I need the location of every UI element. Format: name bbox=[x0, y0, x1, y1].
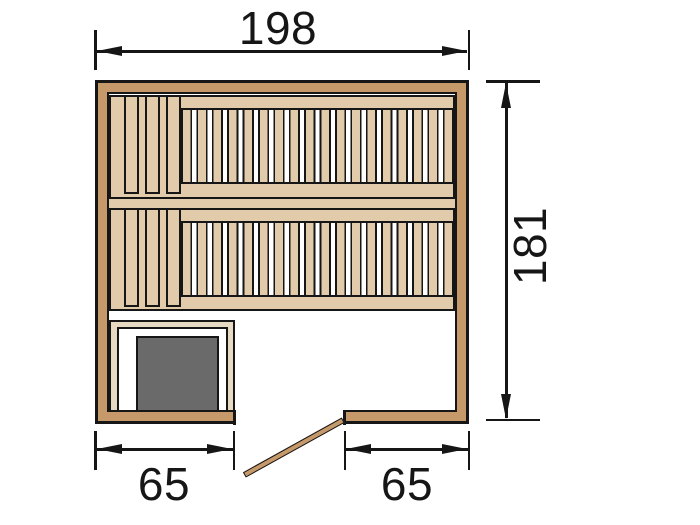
lower-bench-wide-slat bbox=[166, 208, 181, 307]
lower-bench bbox=[109, 208, 455, 311]
dim-right65-arrow-right bbox=[442, 444, 467, 454]
dim-depth-arrow-down bbox=[501, 394, 511, 419]
dim-width-tick-right bbox=[468, 30, 471, 70]
dim-left65-label: 65 bbox=[104, 461, 224, 507]
upper-bench-wide-slat bbox=[145, 95, 160, 194]
dim-right65-label: 65 bbox=[347, 461, 467, 507]
dim-left65-tick-right bbox=[233, 431, 236, 470]
dim-left65-arrow-right bbox=[207, 444, 232, 454]
upper-bench-wide-slat bbox=[166, 95, 181, 194]
dim-width-label: 198 bbox=[218, 5, 338, 51]
dim-depth-tick-bottom bbox=[486, 419, 540, 422]
dim-right65-arrow-left bbox=[346, 444, 371, 454]
upper-bench bbox=[109, 95, 455, 199]
lower-bench-slats bbox=[181, 221, 454, 297]
lower-bench-wide-slat bbox=[124, 208, 139, 307]
sauna-plan-diagram: 198 181 65 65 bbox=[0, 0, 700, 525]
dim-width-arrow-right bbox=[442, 46, 467, 56]
dim-depth-tick-top bbox=[486, 80, 540, 83]
lower-bench-wide-slat bbox=[145, 208, 160, 307]
door-jamb-left bbox=[233, 410, 236, 425]
heater-stove bbox=[136, 336, 219, 412]
upper-bench-wide-slat bbox=[124, 95, 139, 194]
door-opening bbox=[235, 408, 343, 427]
dim-width-arrow-left bbox=[97, 46, 122, 56]
dim-right65-tick-right bbox=[468, 431, 471, 470]
dim-left65-arrow-left bbox=[97, 444, 122, 454]
upper-bench-slats bbox=[181, 108, 454, 184]
dim-depth-arrow-up bbox=[501, 83, 511, 108]
dim-depth-label: 181 bbox=[507, 186, 553, 306]
